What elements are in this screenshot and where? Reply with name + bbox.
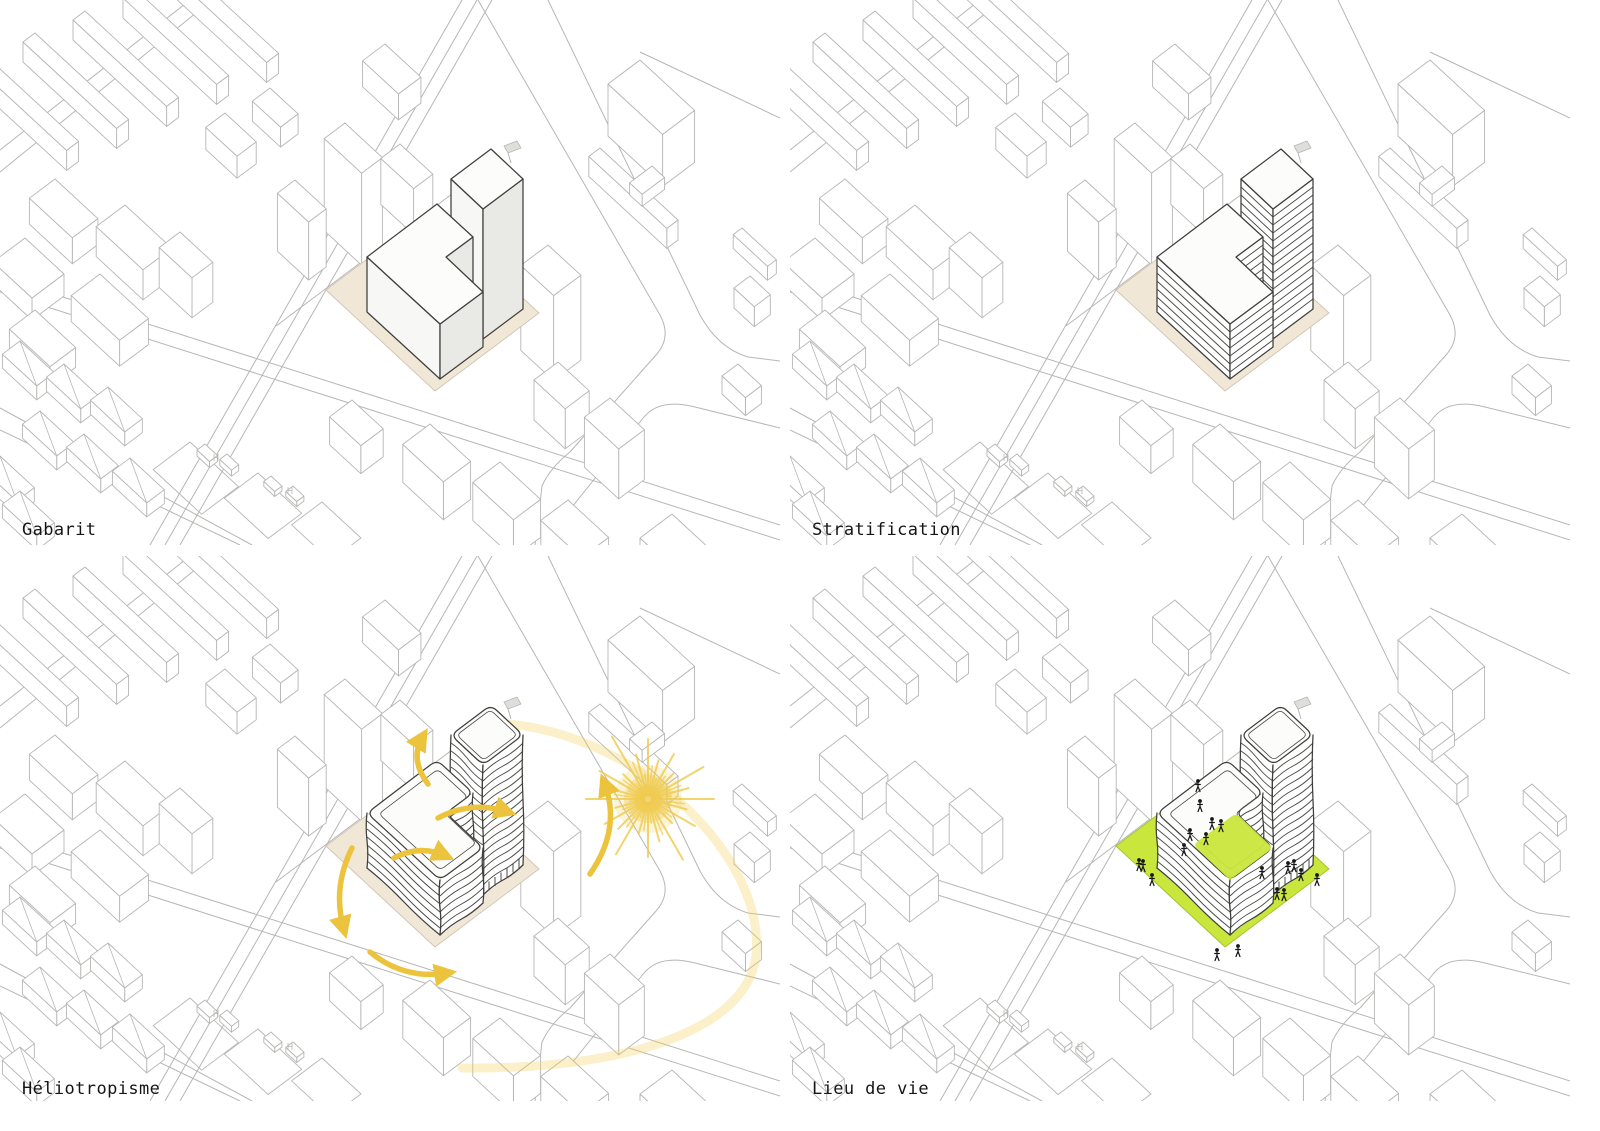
podium-building [367, 204, 483, 379]
panel-stratification: Stratification [790, 0, 1600, 556]
panel-label-lieu-de-vie: Lieu de vie [812, 1079, 929, 1099]
axonometric-drawing-gabarit [0, 0, 780, 545]
axonometric-drawing-heliotropisme [0, 556, 780, 1101]
panel-gabarit: Gabarit [0, 0, 790, 556]
panel-label-stratification: Stratification [812, 520, 961, 540]
panel-lieu-de-vie: Lieu de vie [790, 556, 1600, 1131]
panel-label-gabarit: Gabarit [22, 520, 96, 540]
podium-building [1157, 204, 1273, 379]
diagram-board: Gabarit Stratification Héliotropisme Lie… [0, 0, 1600, 1131]
panel-heliotropisme: Héliotropisme [0, 556, 790, 1131]
axonometric-drawing-lieu-de-vie [790, 556, 1570, 1101]
panel-label-heliotropisme: Héliotropisme [22, 1079, 160, 1099]
axonometric-drawing-stratification [790, 0, 1570, 545]
